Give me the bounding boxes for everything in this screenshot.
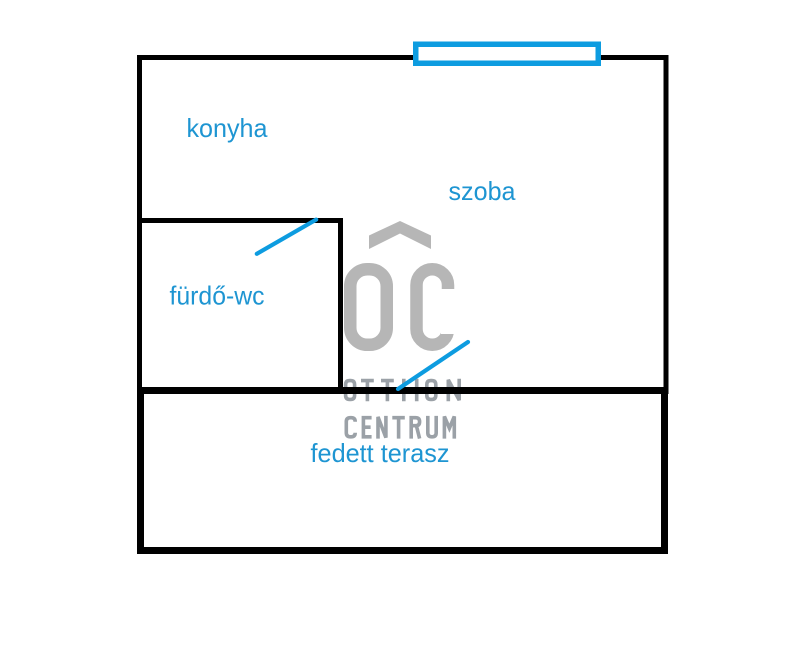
svg-text:fedett terasz: fedett terasz [311, 438, 450, 468]
svg-text:konyha: konyha [187, 113, 269, 143]
svg-text:szoba: szoba [449, 176, 517, 206]
svg-text:fürdő-wc: fürdő-wc [170, 281, 265, 311]
